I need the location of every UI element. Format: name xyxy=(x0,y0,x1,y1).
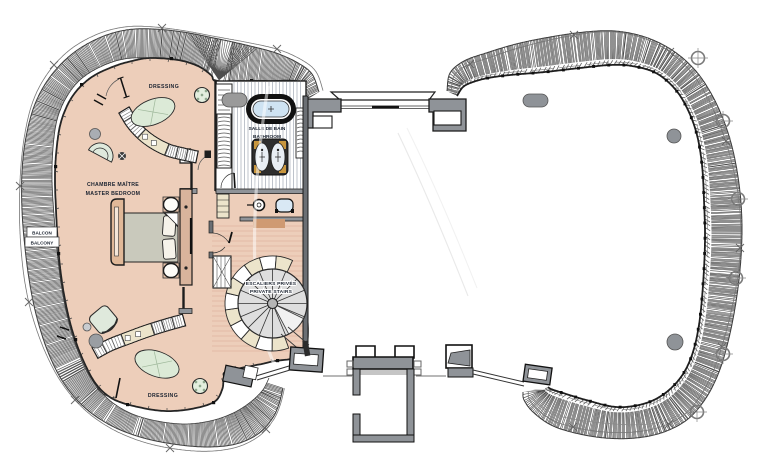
svg-text:MASTER BEDROOM: MASTER BEDROOM xyxy=(86,191,141,197)
svg-text:PRIVATE STAIRS: PRIVATE STAIRS xyxy=(250,289,293,295)
svg-text:DRESSING: DRESSING xyxy=(148,393,178,399)
svg-text:BALCON: BALCON xyxy=(32,231,52,236)
svg-text:CHAMBRE MAÎTRE: CHAMBRE MAÎTRE xyxy=(87,180,139,188)
svg-text:BATHROOM: BATHROOM xyxy=(253,134,281,140)
svg-text:SALLE DE BAIN: SALLE DE BAIN xyxy=(249,126,286,132)
svg-text:BALCONY: BALCONY xyxy=(31,241,54,246)
svg-text:DRESSING: DRESSING xyxy=(149,84,179,90)
